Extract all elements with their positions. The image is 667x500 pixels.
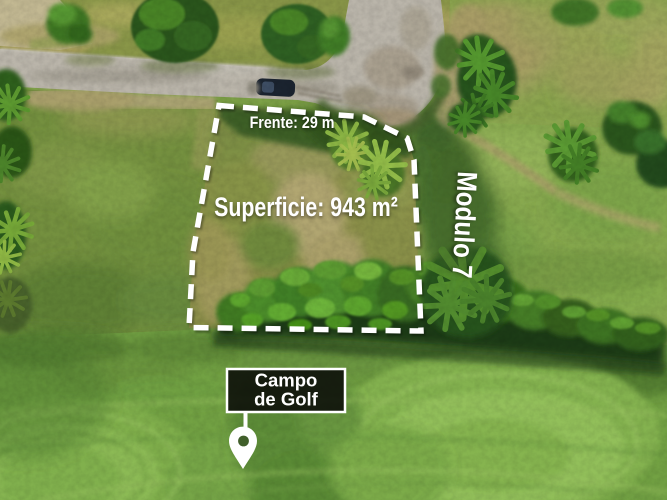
svg-text:Superficie: 943 m²: Superficie: 943 m² (214, 193, 398, 223)
svg-text:Campo: Campo (255, 370, 318, 391)
svg-text:de Golf: de Golf (254, 389, 319, 410)
svg-text:Frente: 29 m: Frente: 29 m (250, 114, 335, 132)
svg-text:Modulo 7: Modulo 7 (446, 171, 484, 279)
